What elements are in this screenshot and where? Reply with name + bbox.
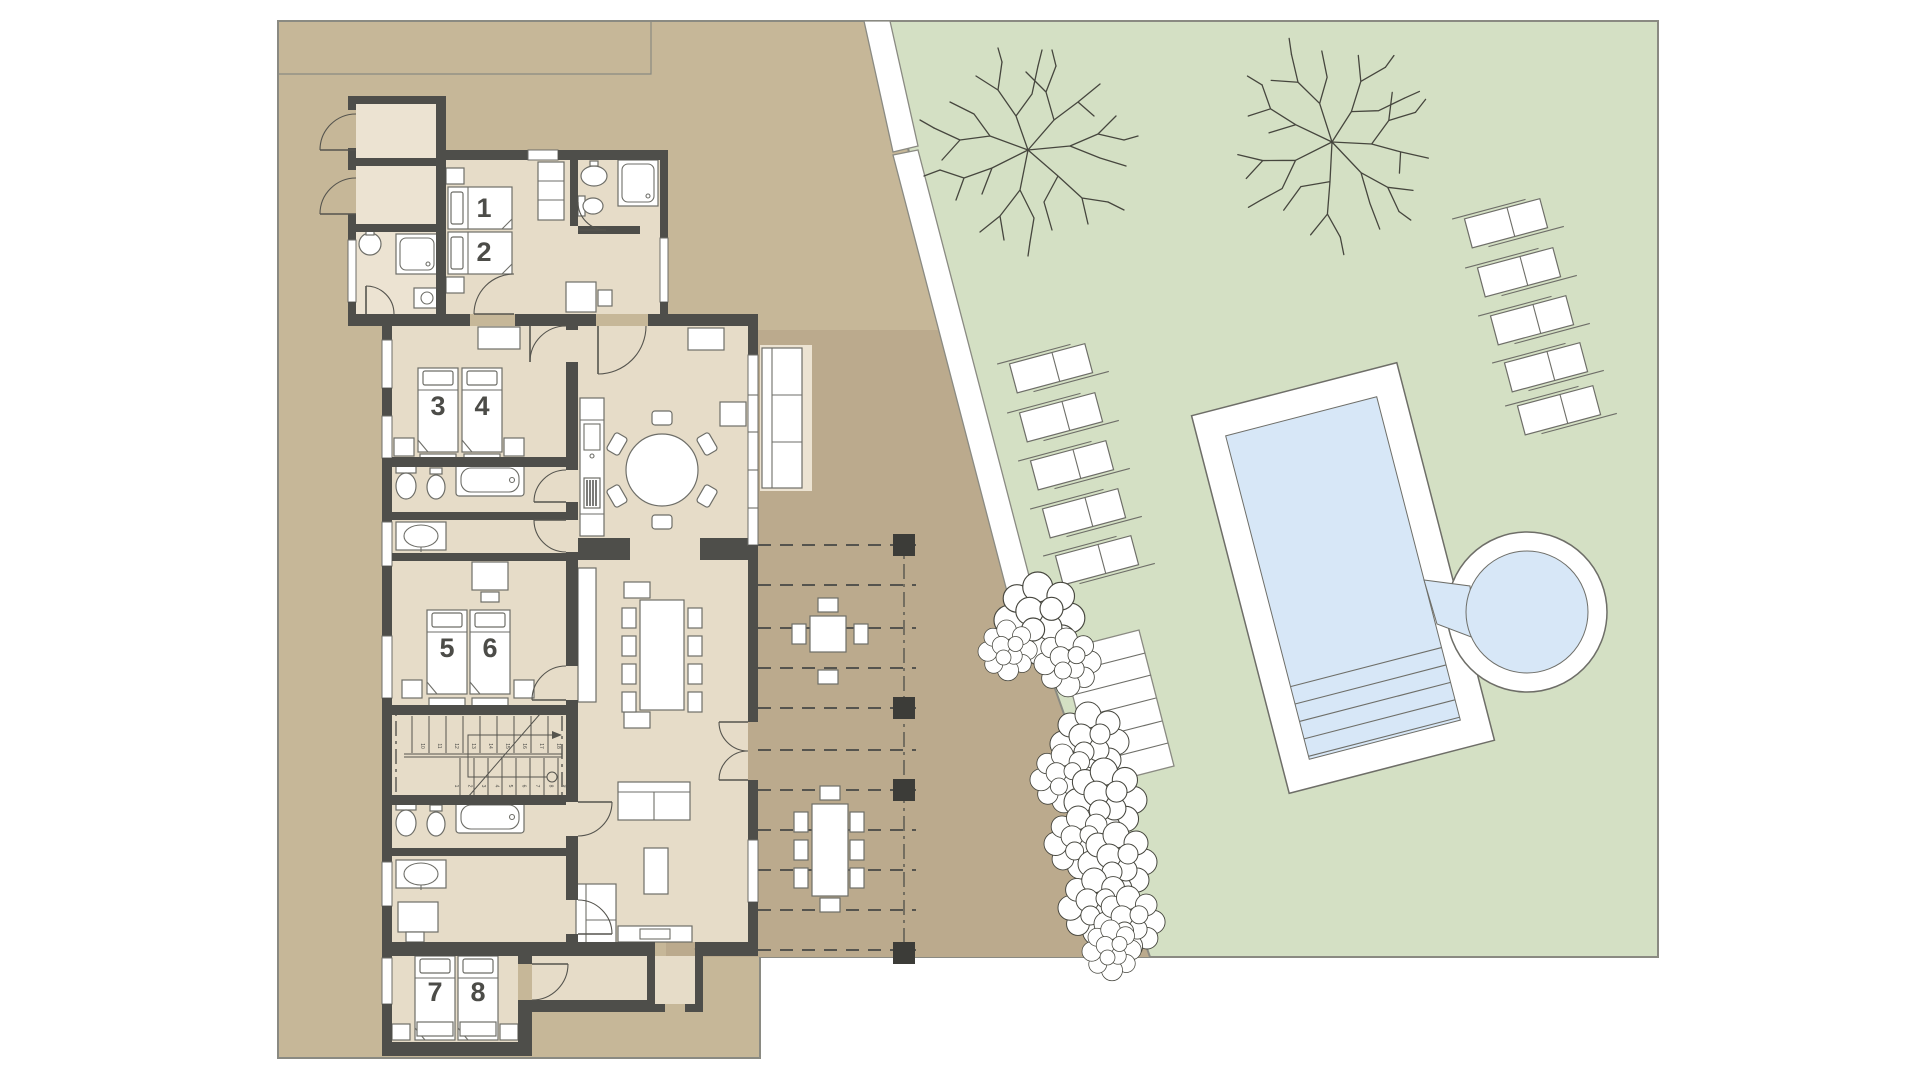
- table-chair: [622, 636, 636, 656]
- table-chair: [622, 608, 636, 628]
- bed-5-label: 5: [439, 633, 454, 663]
- table-chair: [688, 608, 702, 628]
- stair-step-number: 4: [494, 785, 500, 788]
- shower: [396, 234, 438, 274]
- nightstand: [392, 1024, 410, 1040]
- bed-6-label: 6: [482, 633, 497, 663]
- nightstand: [402, 680, 422, 698]
- stair-step-number: 16: [521, 743, 527, 749]
- desk-chair: [481, 592, 499, 602]
- stair-step-number: 2: [467, 785, 473, 788]
- bed-bench: [417, 1022, 453, 1036]
- stair-step-number: 10: [419, 743, 425, 749]
- stair-step-number: 6: [521, 785, 527, 788]
- site-plan-canvas: 1 2: [0, 0, 1920, 1080]
- cabinet: [688, 328, 724, 350]
- stair-step-number: 17: [538, 743, 544, 749]
- stool: [406, 932, 424, 942]
- outdoor-bench: [762, 348, 802, 488]
- glazed-wall: [748, 355, 758, 545]
- shower: [618, 160, 658, 206]
- table-chair: [688, 664, 702, 684]
- kitchen-counter: [580, 398, 604, 536]
- window: [348, 240, 356, 302]
- dresser: [478, 327, 520, 349]
- bed-2-label: 2: [476, 237, 491, 267]
- nightstand: [446, 277, 464, 293]
- cooktop: [584, 478, 600, 508]
- pergola-post: [893, 534, 915, 556]
- toilet: [396, 466, 416, 473]
- table-chair: [622, 664, 636, 684]
- window: [382, 636, 392, 698]
- table-chair: [688, 636, 702, 656]
- tv-bench: [618, 926, 692, 942]
- window: [660, 238, 668, 302]
- entry-lobby-floor: [532, 956, 655, 1000]
- plan-page: 1 2: [0, 0, 1920, 1080]
- side-cabinet: [720, 402, 746, 426]
- bed-7-label: 7: [427, 977, 442, 1007]
- stair-step-number: 15: [504, 743, 510, 749]
- stair-step-number: 11: [436, 743, 442, 748]
- table-chair: [624, 582, 650, 598]
- stair-step-number: 12: [453, 743, 459, 749]
- pergola-post: [893, 942, 915, 964]
- window: [382, 862, 392, 906]
- stair-step-number: 14: [487, 743, 493, 749]
- stair-step-number: 13: [470, 743, 476, 749]
- nightstand: [500, 1024, 518, 1040]
- wardrobe: [538, 162, 564, 220]
- desk: [566, 282, 596, 312]
- stair-step-number: 7: [534, 785, 540, 788]
- bed-bench: [460, 1022, 496, 1036]
- bidet: [430, 805, 442, 811]
- kitchen: [580, 398, 604, 536]
- window: [382, 522, 392, 566]
- window: [382, 416, 392, 458]
- nightstand: [504, 438, 524, 456]
- bed-4-label: 4: [474, 391, 489, 421]
- dressing-table: [398, 902, 438, 932]
- powder-room-1: [396, 522, 446, 552]
- stair-step-number: 3: [480, 785, 486, 788]
- bidet: [430, 468, 442, 474]
- washbasin: [359, 233, 381, 255]
- bed-1-label: 1: [476, 193, 491, 223]
- dining-chair: [652, 515, 672, 529]
- entry-porch-floor: [356, 104, 436, 314]
- nightstand: [394, 438, 414, 456]
- stair-step-number: 8: [548, 785, 554, 788]
- long-dining-table: [640, 600, 684, 710]
- desk: [472, 562, 508, 590]
- table-chair: [622, 692, 636, 712]
- bed-8-label: 8: [470, 977, 485, 1007]
- window: [382, 340, 392, 388]
- stair-step-number: 5: [507, 785, 513, 788]
- window: [528, 150, 558, 160]
- table-chair: [688, 692, 702, 712]
- washbasin: [581, 166, 607, 186]
- entry-bump-floor: [655, 956, 695, 1004]
- nightstand: [446, 168, 464, 184]
- stair-step-number: 18: [555, 743, 561, 749]
- bed-3-label: 3: [430, 391, 445, 421]
- sideboard: [578, 568, 596, 702]
- sofa: [618, 782, 690, 820]
- window: [748, 840, 758, 902]
- round-dining-table: [626, 434, 698, 506]
- pergola-post: [893, 697, 915, 719]
- dining-chair: [652, 411, 672, 425]
- nightstand: [514, 680, 534, 698]
- stair-step-number: 1: [453, 785, 459, 788]
- coffee-table: [644, 848, 668, 894]
- pergola-post: [893, 779, 915, 801]
- desk-chair: [598, 290, 612, 306]
- table-chair: [624, 712, 650, 728]
- window: [382, 958, 392, 1004]
